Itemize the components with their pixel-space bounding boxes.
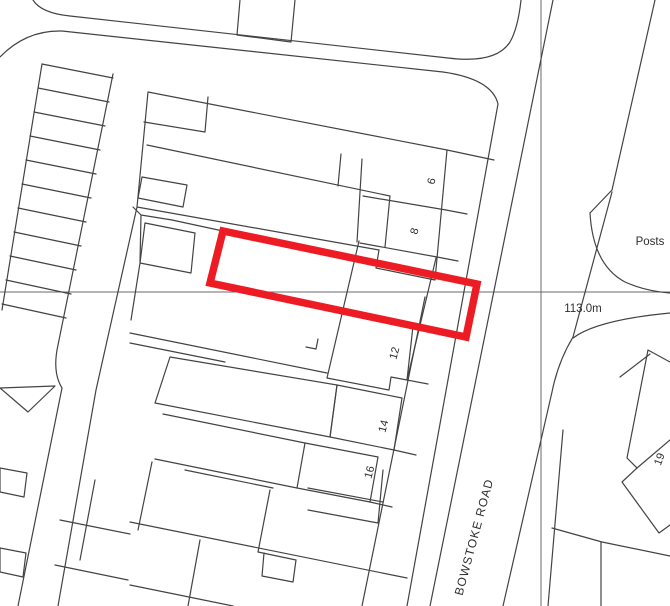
spot-height-label: 113.0m (564, 303, 602, 315)
house-number-14: 14 (377, 419, 392, 434)
garden-strip-rungs (2, 64, 113, 318)
house19-outline (622, 350, 670, 533)
house14-outline (330, 385, 402, 450)
back-alley-right-edge (58, 207, 137, 606)
terrace-6-8-outline (137, 92, 447, 280)
site-plan-map: 6 8 12 14 16 19 BOWSTOKE ROAD 113.0m Pos… (0, 0, 670, 606)
lower-terrace-rows (130, 470, 407, 606)
application-site-outline (210, 231, 477, 337)
top-road-south-edge-and-west-fence (0, 31, 498, 606)
rear-outbuilding (138, 177, 187, 207)
terrace-rows-16 (155, 414, 305, 488)
posts-plot-west-boundary (590, 0, 655, 213)
top-road-north-edge (33, 0, 521, 59)
bottom-right-fence (548, 430, 563, 606)
bowstoke-road-east-kerb (503, 192, 612, 606)
left-triangle-plot (0, 386, 55, 412)
lower-terrace-steps (258, 490, 296, 582)
posts-label: Posts (636, 236, 665, 248)
house-number-16: 16 (363, 465, 378, 480)
posts-plot-frontage-curve (590, 213, 670, 293)
map-labels: 6 8 12 14 16 19 BOWSTOKE ROAD 113.0m Pos… (363, 177, 668, 597)
house-number-12: 12 (388, 346, 403, 361)
bottom-right-boundary (552, 528, 670, 556)
house-number-8: 8 (408, 227, 421, 236)
corner-plot-curve (573, 313, 670, 338)
boundary-into-plot-corner (133, 207, 223, 262)
garden-strip-right-rail (56, 74, 113, 388)
small-jog (306, 339, 318, 349)
building-top-centre (237, 0, 295, 42)
house-number-19: 19 (652, 452, 667, 468)
lower-terrace-divisions (55, 462, 200, 606)
road-name-label: BOWSTOKE ROAD (452, 477, 497, 597)
house-number-6: 6 (425, 177, 438, 186)
site-plan-canvas: 6 8 12 14 16 19 BOWSTOKE ROAD 113.0m Pos… (0, 0, 670, 606)
left-edge-outbuildings (0, 468, 27, 577)
